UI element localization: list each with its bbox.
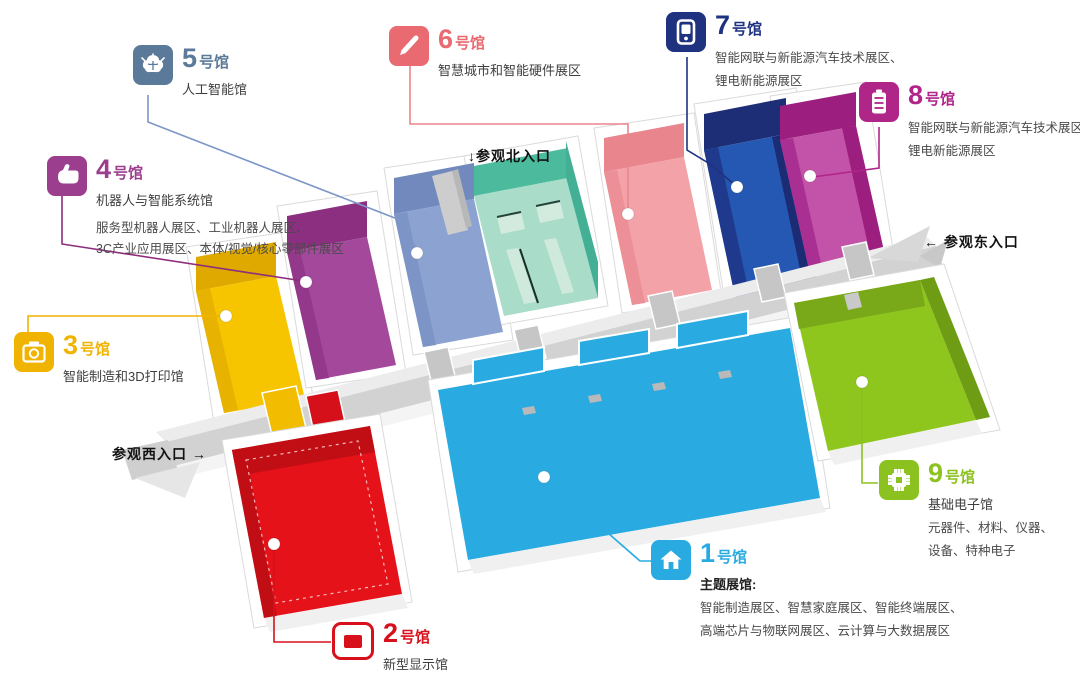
west-entrance-label: 参观西入口 → — [112, 444, 207, 464]
hand-icon — [47, 156, 87, 196]
hall-5-title: 5号馆 — [182, 45, 247, 72]
left-arrow-icon: ← — [924, 234, 939, 250]
hall-1-theme-heading: 主题展馆: — [700, 574, 963, 593]
hall-1-zone-1: 智能制造展区、智慧家庭展区、智能终端展区、 — [700, 597, 963, 616]
hall-2-name: 新型显示馆 — [383, 654, 448, 673]
hall-1-anchor-dot — [538, 471, 550, 483]
expo-floor-map: 5号馆 人工智能馆 6号馆 智慧城市和智能硬件展区 7号馆 智能网联与新能 — [0, 0, 1080, 696]
hall-2-label: 2号馆 新型显示馆 — [332, 620, 448, 673]
hall-3-title: 3号馆 — [63, 332, 184, 359]
battery-icon — [859, 82, 899, 122]
hall-4-zone-2: 3C产业应用展区、本体/视觉/核心零部件展区 — [96, 238, 344, 257]
east-entrance-label: ← 参观东入口 — [924, 232, 1019, 252]
hall-6-title: 6号馆 — [438, 26, 581, 53]
hall-6-label: 6号馆 智慧城市和智能硬件展区 — [389, 26, 581, 79]
hall-9-zone-1: 元器件、材料、仪器、 — [928, 517, 1053, 536]
hall-3-name: 智能制造和3D打印馆 — [63, 366, 184, 385]
pen-icon — [389, 26, 429, 66]
right-arrow-icon: → — [192, 446, 207, 462]
hall-8-title: 8号馆 — [908, 82, 1080, 109]
printer-icon — [14, 332, 54, 372]
hall-7-label: 7号馆 智能网联与新能源汽车技术展区、 锂电新能源展区 — [666, 12, 903, 89]
hall-5-name: 人工智能馆 — [182, 79, 247, 98]
north-entrance-label: ↓参观北入口 — [468, 146, 551, 166]
hall-5-anchor-dot — [411, 247, 423, 259]
hall-4-title: 4号馆 — [96, 156, 344, 183]
hall-7-anchor-dot — [731, 181, 743, 193]
hall-1-zone-2: 高端芯片与物联网展区、云计算与大数据展区 — [700, 620, 963, 639]
hall-8-anchor-dot — [804, 170, 816, 182]
hall-6-name: 智慧城市和智能硬件展区 — [438, 60, 581, 79]
hall-8-zone-2: 锂电新能源展区 — [908, 140, 1080, 159]
hall-2-title: 2号馆 — [383, 620, 448, 647]
hall-3-anchor-dot — [220, 310, 232, 322]
hall-7-title: 7号馆 — [715, 12, 903, 39]
down-arrow-icon: ↓ — [468, 148, 476, 164]
hall-6-anchor-dot — [622, 208, 634, 220]
hall-8-zone-1: 智能网联与新能源汽车技术展区 — [908, 117, 1080, 136]
hall-9-label: 9号馆 基础电子馆 元器件、材料、仪器、 设备、特种电子 — [879, 460, 1053, 559]
hall-4-name: 机器人与智能系统馆 — [96, 190, 344, 209]
hall-7-zone-1: 智能网联与新能源汽车技术展区、 — [715, 47, 903, 66]
hall-2-anchor-dot — [268, 538, 280, 550]
hall-3-label: 3号馆 智能制造和3D打印馆 — [14, 332, 184, 385]
hall-4-label: 4号馆 机器人与智能系统馆 服务型机器人展区、工业机器人展区、 3C产业应用展区… — [47, 156, 344, 257]
hall-9-title: 9号馆 — [928, 460, 1053, 487]
hall-9-anchor-dot — [856, 376, 868, 388]
home-icon — [651, 540, 691, 580]
charging-device-icon — [666, 12, 706, 52]
hall-9-zone-2: 设备、特种电子 — [928, 540, 1053, 559]
hall-4-anchor-dot — [300, 276, 312, 288]
display-icon — [332, 622, 374, 660]
chip-icon — [879, 460, 919, 500]
hall-5-label: 5号馆 人工智能馆 — [133, 45, 247, 98]
hall-8-label: 8号馆 智能网联与新能源汽车技术展区 锂电新能源展区 — [859, 82, 1080, 159]
hall-4-zone-1: 服务型机器人展区、工业机器人展区、 — [96, 217, 344, 236]
brain-icon — [133, 45, 173, 85]
hall-9-name: 基础电子馆 — [928, 494, 1053, 513]
